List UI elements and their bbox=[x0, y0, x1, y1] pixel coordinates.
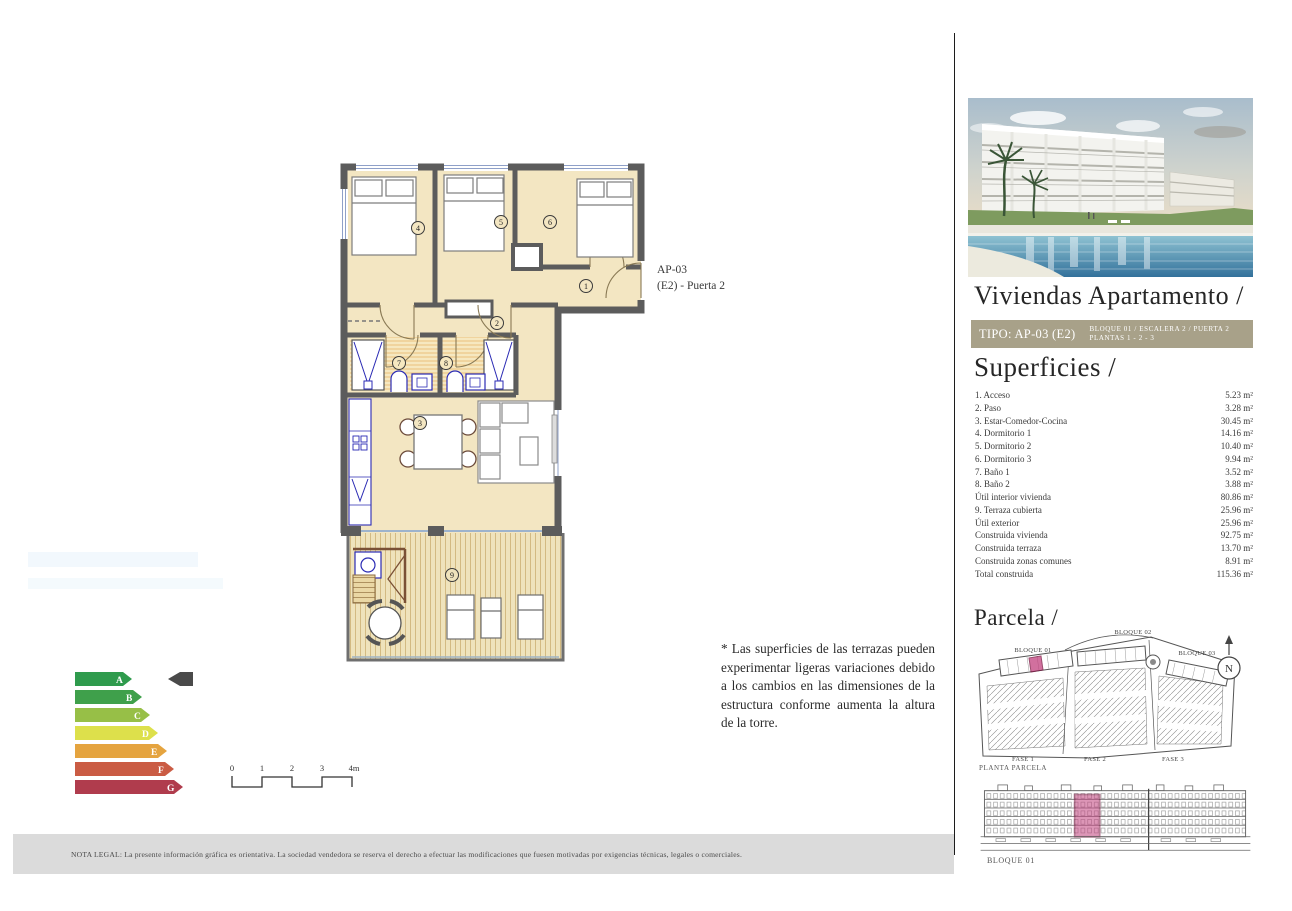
badge-line2: PLANTAS 1 - 2 - 3 bbox=[1089, 334, 1229, 343]
superficies-row: Útil exterior25.96 m² bbox=[975, 517, 1253, 530]
legal-bar: NOTA LEGAL: La presente información gráf… bbox=[13, 834, 954, 874]
row-label: Construida vivienda bbox=[975, 529, 1048, 542]
row-label: Útil exterior bbox=[975, 517, 1019, 530]
base-openings bbox=[996, 839, 1221, 842]
row-label: 4. Dormitorio 1 bbox=[975, 427, 1031, 440]
superficies-heading: Superficies / bbox=[974, 352, 1116, 383]
row-value: 115.36 m² bbox=[1217, 568, 1253, 581]
scale-label: 3 bbox=[320, 763, 324, 773]
room-number: 4 bbox=[416, 224, 420, 233]
watermark-ghost bbox=[28, 578, 223, 589]
row-label: 8. Baño 2 bbox=[975, 478, 1010, 491]
row-label: 7. Baño 1 bbox=[975, 466, 1010, 479]
shaft bbox=[513, 245, 541, 269]
row-value: 14.16 m² bbox=[1221, 427, 1253, 440]
fase-label: FASE 2 bbox=[1084, 756, 1106, 763]
superficies-row: 8. Baño 23.88 m² bbox=[975, 478, 1253, 491]
row-label: Construida zonas comunes bbox=[975, 555, 1071, 568]
main-building bbox=[982, 124, 1164, 216]
row-value: 30.45 m² bbox=[1221, 415, 1253, 428]
rooftop-boxes bbox=[998, 785, 1224, 791]
building-render-photo bbox=[968, 98, 1253, 277]
room-number: 1 bbox=[584, 282, 588, 291]
room-number: 9 bbox=[450, 571, 454, 580]
energy-arrow-a bbox=[75, 672, 132, 686]
site-plan-caption: PLANTA PARCELA bbox=[979, 764, 1047, 772]
compass-icon: N bbox=[1218, 635, 1240, 679]
floor-plan: 1 2 3 4 5 6 7 8 9 bbox=[328, 155, 663, 675]
compass-n: N bbox=[1225, 663, 1233, 675]
row-label: 1. Acceso bbox=[975, 389, 1010, 402]
fase-label: FASE 1 bbox=[1012, 756, 1034, 763]
row-value: 80.86 m² bbox=[1221, 491, 1253, 504]
energy-pointer-icon bbox=[168, 672, 193, 686]
scale-label: 0 bbox=[230, 763, 234, 773]
energy-letter: D bbox=[142, 730, 149, 740]
facade bbox=[984, 791, 1245, 837]
column-divider bbox=[954, 33, 955, 855]
roundabout-center bbox=[1150, 659, 1156, 665]
superficies-row: 9. Terraza cubierta25.96 m² bbox=[975, 504, 1253, 517]
superficies-row: 6. Dormitorio 39.94 m² bbox=[975, 453, 1253, 466]
highlighted-unit bbox=[1029, 656, 1043, 672]
row-value: 3.28 m² bbox=[1225, 402, 1253, 415]
kitchen bbox=[349, 399, 371, 525]
row-value: 10.40 m² bbox=[1221, 440, 1253, 453]
row-value: 3.52 m² bbox=[1225, 466, 1253, 479]
energy-letter: G bbox=[167, 784, 175, 794]
unit-label-line1: AP-03 bbox=[657, 262, 725, 278]
row-label: Construida terraza bbox=[975, 542, 1041, 555]
site-plan: N BLOQUE 01 BLOQUE 02 BLOQUE 03 FASE 1 F… bbox=[973, 622, 1255, 774]
bedroom-furniture bbox=[352, 175, 633, 257]
page-title: Viviendas Apartamento / bbox=[974, 281, 1244, 311]
badge-sub: BLOQUE 01 / ESCALERA 2 / PUERTA 2 PLANTA… bbox=[1075, 325, 1229, 343]
superficies-row: 2. Paso3.28 m² bbox=[975, 402, 1253, 415]
superficies-row: Útil interior vivienda80.86 m² bbox=[975, 491, 1253, 504]
bloque-label: BLOQUE 01 bbox=[1014, 647, 1051, 654]
legal-text: NOTA LEGAL: La presente información gráf… bbox=[13, 850, 742, 859]
scale-label: 2 bbox=[290, 763, 294, 773]
superficies-row: 3. Estar-Comedor-Cocina30.45 m² bbox=[975, 415, 1253, 428]
watermark-ghost bbox=[28, 552, 198, 567]
scale-line bbox=[232, 776, 352, 787]
row-label: 2. Paso bbox=[975, 402, 1001, 415]
bloque-label: BLOQUE 03 bbox=[1178, 650, 1215, 657]
row-value: 25.96 m² bbox=[1221, 517, 1253, 530]
row-label: Total construida bbox=[975, 568, 1033, 581]
energy-letter: C bbox=[134, 712, 141, 722]
bloque-label: BLOQUE 02 bbox=[1114, 629, 1151, 636]
row-value: 5.23 m² bbox=[1225, 389, 1253, 402]
badge-line1: BLOQUE 01 / ESCALERA 2 / PUERTA 2 bbox=[1089, 325, 1229, 334]
energy-letter: F bbox=[158, 766, 164, 776]
row-label: 9. Terraza cubierta bbox=[975, 504, 1042, 517]
superficies-row: 7. Baño 13.52 m² bbox=[975, 466, 1253, 479]
superficies-row: 5. Dormitorio 210.40 m² bbox=[975, 440, 1253, 453]
energy-letter: B bbox=[126, 694, 133, 704]
tv-unit bbox=[552, 415, 557, 463]
room-number: 5 bbox=[499, 218, 503, 227]
row-label: 5. Dormitorio 2 bbox=[975, 440, 1031, 453]
elevation-label: BLOQUE 01 bbox=[987, 856, 1035, 865]
scale-label: 4m bbox=[349, 763, 360, 773]
sofa bbox=[478, 401, 554, 483]
scale-bar: 0 1 2 3 4m bbox=[226, 762, 366, 794]
fase-label: FASE 3 bbox=[1162, 756, 1184, 763]
energy-rating-label: A B C D E F G bbox=[72, 666, 207, 798]
room-number: 6 bbox=[548, 218, 552, 227]
superficies-row: 1. Acceso5.23 m² bbox=[975, 389, 1253, 402]
row-label: Útil interior vivienda bbox=[975, 491, 1051, 504]
superficies-row: Construida terraza13.70 m² bbox=[975, 542, 1253, 555]
unit-label-line2: (E2) - Puerta 2 bbox=[657, 278, 725, 294]
unit-label: AP-03 (E2) - Puerta 2 bbox=[657, 262, 725, 294]
energy-letter: A bbox=[116, 676, 123, 686]
type-badge: TIPO: AP-03 (E2) BLOQUE 01 / ESCALERA 2 … bbox=[971, 320, 1253, 348]
superficies-row: 4. Dormitorio 114.16 m² bbox=[975, 427, 1253, 440]
row-label: 3. Estar-Comedor-Cocina bbox=[975, 415, 1067, 428]
scale-label: 1 bbox=[260, 763, 264, 773]
row-value: 13.70 m² bbox=[1221, 542, 1253, 555]
brochure-page: 1 2 3 4 5 6 7 8 9 AP-03 (E2) - Puerta 2 … bbox=[0, 0, 1292, 911]
row-value: 25.96 m² bbox=[1221, 504, 1253, 517]
superficies-row: Total construida115.36 m² bbox=[975, 568, 1253, 581]
room-number: 7 bbox=[397, 359, 401, 368]
wardrobe bbox=[446, 301, 492, 317]
row-label: 6. Dormitorio 3 bbox=[975, 453, 1031, 466]
badge-tipo: TIPO: AP-03 (E2) bbox=[971, 327, 1075, 342]
superficies-row: Construida vivienda92.75 m² bbox=[975, 529, 1253, 542]
row-value: 3.88 m² bbox=[1225, 478, 1253, 491]
room-number: 2 bbox=[495, 319, 499, 328]
room-number: 8 bbox=[444, 359, 448, 368]
highlighted-apartment bbox=[1075, 795, 1100, 837]
room-number: 3 bbox=[418, 419, 422, 428]
terrace-note: * Las superficies de las terrazas pueden… bbox=[721, 640, 935, 733]
row-value: 8.91 m² bbox=[1225, 555, 1253, 568]
superficies-list: 1. Acceso5.23 m² 2. Paso3.28 m² 3. Estar… bbox=[975, 389, 1253, 580]
energy-letter: E bbox=[151, 748, 157, 758]
superficies-row: Construida zonas comunes8.91 m² bbox=[975, 555, 1253, 568]
row-value: 9.94 m² bbox=[1225, 453, 1253, 466]
row-value: 92.75 m² bbox=[1221, 529, 1253, 542]
building-elevation bbox=[973, 783, 1258, 855]
